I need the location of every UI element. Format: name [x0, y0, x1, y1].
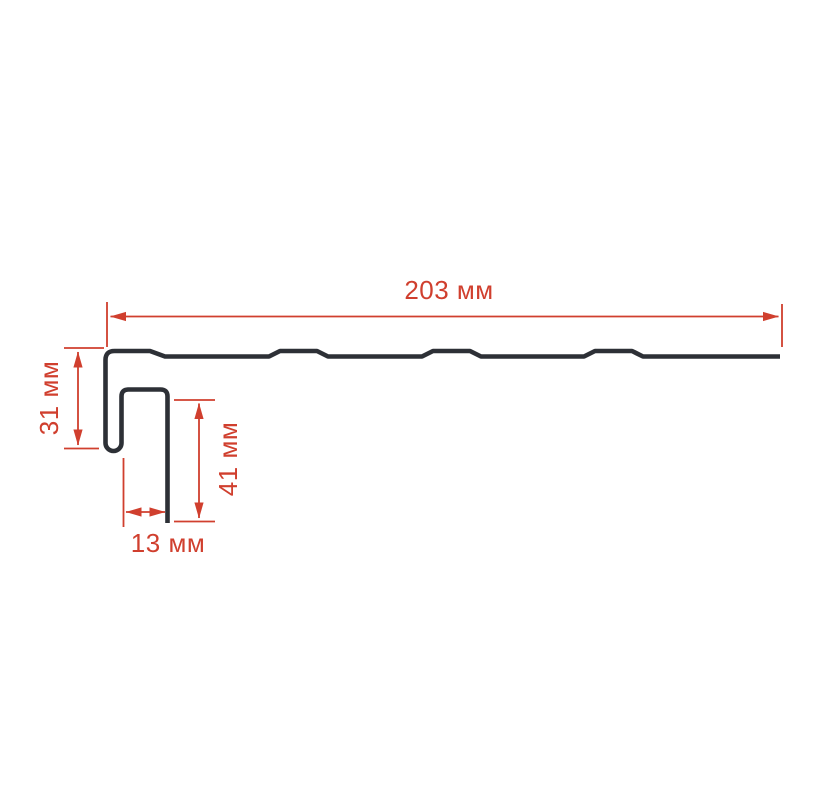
dimension-length: 203 мм: [107, 275, 782, 347]
dimension-leg: 41 мм: [174, 400, 243, 522]
length-dimension-label: 203 мм: [404, 275, 493, 305]
leg-dimension-label: 41 мм: [213, 422, 243, 496]
profile: [106, 351, 781, 523]
height-dimension-label: 31 мм: [34, 361, 64, 435]
dimension-height: 31 мм: [34, 348, 104, 449]
profile-technical-drawing: 203 мм 31 мм 41 мм 13 мм: [0, 0, 839, 810]
dimension-width: 13 мм: [124, 458, 206, 558]
width-dimension-label: 13 мм: [131, 528, 205, 558]
drawing-canvas: 203 мм 31 мм 41 мм 13 мм: [0, 0, 839, 810]
profile-outline: [106, 351, 781, 523]
